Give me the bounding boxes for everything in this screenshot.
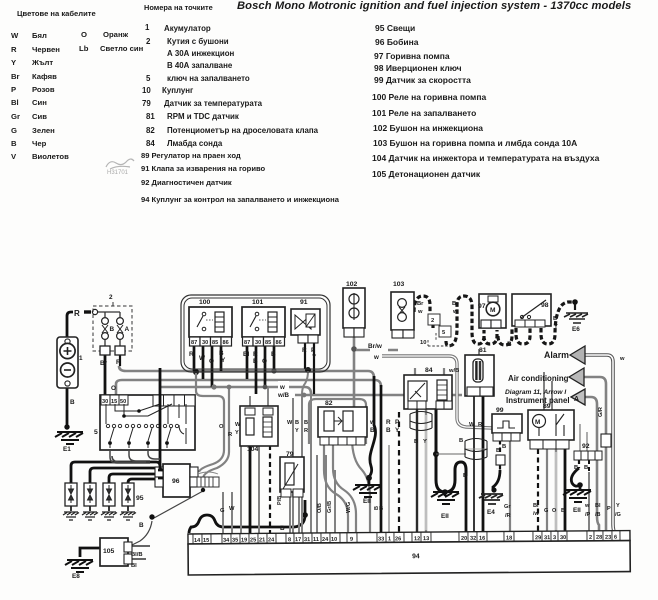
svg-text:B: B bbox=[459, 438, 463, 444]
svg-text:G/R: G/R bbox=[598, 407, 604, 417]
svg-text:Br: Br bbox=[533, 503, 540, 509]
svg-text:25: 25 bbox=[250, 537, 256, 543]
svg-text:B: B bbox=[110, 326, 115, 333]
svg-text:Bl: Bl bbox=[595, 503, 601, 509]
svg-text:B: B bbox=[574, 465, 578, 471]
svg-text:24: 24 bbox=[322, 537, 329, 543]
svg-text:R: R bbox=[386, 419, 391, 426]
svg-text:Y: Y bbox=[312, 354, 317, 361]
svg-text:Instrument panel: Instrument panel bbox=[506, 396, 570, 405]
svg-text:Br: Br bbox=[417, 301, 424, 307]
svg-text:M: M bbox=[490, 307, 496, 314]
svg-text:Y: Y bbox=[295, 428, 299, 434]
svg-text:99: 99 bbox=[496, 407, 504, 414]
svg-text:Bl/B: Bl/B bbox=[131, 552, 143, 558]
svg-text:8: 8 bbox=[288, 537, 291, 543]
svg-text:95: 95 bbox=[136, 495, 144, 502]
svg-text:98: 98 bbox=[541, 302, 549, 309]
svg-text:/w: /w bbox=[533, 511, 540, 517]
svg-text:Air conditioning: Air conditioning bbox=[508, 374, 569, 383]
svg-text:P: P bbox=[311, 347, 316, 354]
svg-text:105: 105 bbox=[103, 548, 115, 555]
svg-text:R: R bbox=[74, 309, 80, 318]
svg-text:29: 29 bbox=[535, 535, 541, 541]
svg-text:Alarm: Alarm bbox=[544, 350, 569, 360]
svg-text:10: 10 bbox=[331, 537, 337, 543]
svg-text:31: 31 bbox=[304, 537, 310, 543]
svg-text:R: R bbox=[116, 359, 121, 366]
svg-text:E8: E8 bbox=[72, 573, 80, 580]
svg-text:E1: E1 bbox=[63, 446, 71, 453]
svg-text:R: R bbox=[189, 351, 194, 358]
svg-text:W: W bbox=[235, 422, 241, 428]
svg-text:34: 34 bbox=[223, 538, 230, 544]
svg-text:10: 10 bbox=[420, 340, 426, 346]
svg-text:P/B: P/B bbox=[277, 496, 283, 505]
svg-text:2: 2 bbox=[109, 294, 113, 301]
svg-text:w: w bbox=[373, 354, 379, 361]
svg-text:G: G bbox=[220, 508, 225, 514]
svg-text:R: R bbox=[304, 428, 308, 434]
svg-text:Y: Y bbox=[221, 357, 226, 364]
svg-text:B: B bbox=[367, 475, 371, 481]
svg-text:B: B bbox=[561, 508, 565, 514]
svg-text:W: W bbox=[469, 422, 475, 428]
svg-text:B: B bbox=[139, 522, 144, 529]
svg-text:/G: /G bbox=[615, 512, 621, 518]
svg-text:P: P bbox=[607, 506, 611, 512]
svg-text:94: 94 bbox=[412, 553, 420, 560]
svg-text:w: w bbox=[417, 309, 423, 315]
svg-text:Y: Y bbox=[235, 430, 239, 436]
svg-text:B: B bbox=[70, 399, 75, 406]
svg-text:104: 104 bbox=[247, 446, 259, 453]
svg-text:w/B: w/B bbox=[277, 392, 290, 399]
svg-text:97: 97 bbox=[478, 303, 486, 310]
svg-text:B: B bbox=[295, 420, 299, 426]
svg-text:13: 13 bbox=[423, 536, 429, 542]
svg-text:18: 18 bbox=[506, 535, 512, 541]
svg-text:w: w bbox=[452, 309, 458, 315]
svg-text:5: 5 bbox=[94, 429, 98, 436]
svg-text:W: W bbox=[199, 355, 206, 362]
svg-text:16: 16 bbox=[479, 536, 485, 542]
svg-text:B: B bbox=[463, 473, 467, 479]
svg-text:17: 17 bbox=[295, 537, 301, 543]
svg-text:26: 26 bbox=[395, 536, 401, 542]
svg-text:B: B bbox=[584, 465, 588, 471]
svg-text:Br: Br bbox=[100, 360, 108, 367]
svg-text:EII: EII bbox=[441, 513, 449, 520]
svg-text:3: 3 bbox=[553, 535, 556, 541]
svg-text:82: 82 bbox=[325, 400, 333, 407]
svg-text:R: R bbox=[302, 347, 307, 354]
svg-text:O: O bbox=[209, 358, 214, 365]
svg-text:87: 87 bbox=[191, 340, 197, 346]
svg-text:E4: E4 bbox=[487, 509, 495, 516]
svg-text:35: 35 bbox=[232, 538, 238, 544]
svg-text:W: W bbox=[287, 420, 293, 426]
svg-text:B: B bbox=[219, 350, 224, 357]
svg-text:Br: Br bbox=[452, 301, 459, 307]
svg-text:B: B bbox=[271, 351, 276, 358]
svg-text:w/B: w/B bbox=[448, 368, 459, 374]
svg-text:w: w bbox=[279, 384, 285, 391]
svg-text:Y: Y bbox=[395, 427, 400, 434]
svg-text:28: 28 bbox=[596, 535, 602, 541]
svg-text:P: P bbox=[395, 419, 400, 426]
svg-text:M: M bbox=[535, 419, 540, 426]
svg-text:91: 91 bbox=[300, 299, 308, 306]
svg-text:B: B bbox=[253, 358, 258, 365]
svg-text:85: 85 bbox=[212, 340, 218, 346]
svg-text:Gr: Gr bbox=[504, 504, 511, 510]
svg-text:Bl: Bl bbox=[243, 351, 250, 358]
svg-text:B: B bbox=[553, 316, 557, 322]
svg-text:92: 92 bbox=[582, 443, 590, 450]
svg-text:79: 79 bbox=[286, 451, 294, 458]
svg-text:86: 86 bbox=[223, 340, 229, 346]
svg-text:R: R bbox=[253, 351, 258, 358]
svg-text:86: 86 bbox=[276, 340, 282, 346]
svg-text:/B: /B bbox=[595, 512, 601, 518]
svg-text:30: 30 bbox=[560, 535, 566, 541]
svg-text:50: 50 bbox=[120, 399, 126, 405]
svg-text:30: 30 bbox=[202, 340, 208, 346]
svg-text:19: 19 bbox=[241, 538, 247, 544]
svg-text:O: O bbox=[219, 424, 224, 430]
svg-text:14: 14 bbox=[194, 538, 201, 544]
svg-text:21: 21 bbox=[259, 537, 265, 543]
svg-text:15: 15 bbox=[203, 538, 209, 544]
svg-text:30: 30 bbox=[255, 340, 261, 346]
svg-text:30: 30 bbox=[102, 399, 108, 405]
svg-text:1: 1 bbox=[388, 536, 391, 542]
svg-text:/P: /P bbox=[585, 512, 591, 518]
svg-text:W/G: W/G bbox=[346, 502, 352, 513]
svg-text:85: 85 bbox=[265, 340, 271, 346]
svg-text:/R: /R bbox=[505, 513, 511, 519]
svg-text:Gr/B: Gr/B bbox=[327, 501, 333, 513]
svg-text:87: 87 bbox=[244, 340, 250, 346]
svg-text:81: 81 bbox=[479, 347, 487, 354]
svg-text:15: 15 bbox=[111, 399, 117, 405]
svg-text:20: 20 bbox=[461, 536, 467, 542]
svg-text:Bl: Bl bbox=[131, 563, 137, 569]
svg-text:A: A bbox=[574, 396, 579, 403]
svg-text:Diagram 11, Arrow I: Diagram 11, Arrow I bbox=[505, 389, 566, 396]
svg-text:w: w bbox=[584, 503, 590, 509]
svg-text:B: B bbox=[502, 444, 506, 450]
svg-text:Y: Y bbox=[554, 324, 558, 330]
svg-text:G: G bbox=[544, 508, 548, 514]
svg-text:101: 101 bbox=[252, 299, 264, 306]
svg-text:31: 31 bbox=[544, 535, 550, 541]
svg-text:B: B bbox=[304, 420, 308, 426]
svg-text:96: 96 bbox=[172, 478, 180, 485]
svg-text:1: 1 bbox=[79, 355, 83, 362]
svg-text:O: O bbox=[111, 385, 116, 392]
svg-text:O: O bbox=[552, 508, 557, 514]
svg-text:100: 100 bbox=[199, 299, 211, 306]
svg-text:23: 23 bbox=[605, 535, 611, 541]
svg-text:33: 33 bbox=[378, 536, 384, 542]
svg-text:B: B bbox=[370, 427, 375, 434]
svg-text:102: 102 bbox=[346, 281, 358, 288]
svg-text:32: 32 bbox=[470, 536, 476, 542]
svg-text:84: 84 bbox=[425, 367, 433, 374]
svg-text:Y: Y bbox=[423, 439, 427, 445]
svg-text:B: B bbox=[496, 448, 500, 454]
svg-text:O: O bbox=[262, 358, 267, 365]
svg-text:2: 2 bbox=[431, 318, 434, 324]
svg-text:B: B bbox=[379, 506, 383, 512]
svg-text:EII: EII bbox=[573, 507, 581, 514]
svg-text:2: 2 bbox=[589, 535, 592, 541]
svg-text:B: B bbox=[507, 341, 512, 348]
svg-text:Y: Y bbox=[616, 503, 620, 509]
svg-text:O/B: O/B bbox=[317, 503, 323, 513]
svg-text:12: 12 bbox=[414, 536, 420, 542]
svg-text:24: 24 bbox=[268, 537, 275, 543]
svg-text:E6: E6 bbox=[572, 326, 580, 333]
svg-text:W: W bbox=[229, 506, 235, 512]
svg-text:9: 9 bbox=[350, 537, 353, 543]
svg-text:6: 6 bbox=[614, 535, 617, 541]
svg-text:A: A bbox=[125, 326, 130, 333]
svg-text:B: B bbox=[386, 427, 391, 434]
svg-text:B: B bbox=[414, 439, 418, 445]
svg-text:B: B bbox=[280, 525, 285, 532]
svg-text:EII: EII bbox=[363, 498, 371, 505]
svg-text:Br/w: Br/w bbox=[368, 343, 382, 350]
svg-text:w: w bbox=[619, 356, 625, 362]
svg-text:103: 103 bbox=[393, 281, 405, 288]
svg-text:R: R bbox=[228, 432, 233, 438]
svg-text:11: 11 bbox=[313, 537, 319, 543]
svg-text:w: w bbox=[369, 419, 375, 426]
